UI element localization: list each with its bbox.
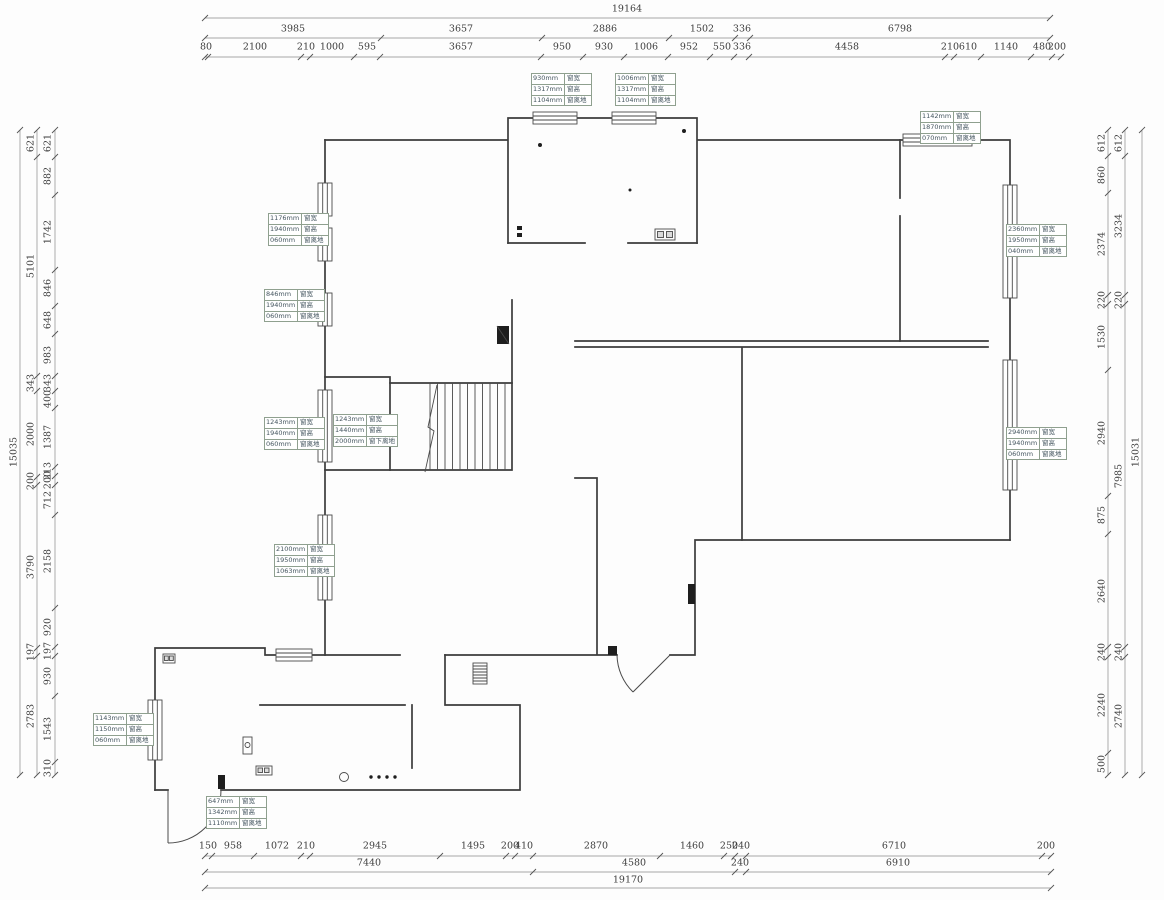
dim: 400 [43,390,54,408]
dim: 648 [43,311,54,329]
label-value: 1940mm [265,301,298,311]
label-value: 040mm [1007,247,1040,257]
wall-fitting [517,226,522,230]
dim: 1495 [461,841,485,852]
label-value: 2000mm [334,437,367,447]
label-value: 070mm [921,134,954,144]
dim: 1502 [690,24,714,35]
ceiling-dot [682,129,686,133]
label-key: 窗宽 [127,714,153,724]
dim: 1543 [43,717,54,741]
dim: 220 [1114,291,1125,309]
dim: 1460 [680,841,704,852]
label-key: 窗宽 [298,418,324,428]
label-value: 1950mm [275,556,308,566]
dim-total-left: 15035 [9,437,20,467]
label-key: 窗离地 [1040,450,1066,460]
label-value: 1950mm [1007,236,1040,246]
dim: 1006 [634,42,658,53]
dim: 6710 [882,841,906,852]
door-block [218,775,225,789]
label-value: 1243mm [265,418,298,428]
label-key: 窗宽 [954,112,980,122]
label-value: 1006mm [616,74,649,84]
dim: 1387 [43,425,54,449]
dim: 1072 [265,841,289,852]
dim: 1530 [1097,325,1108,349]
stove-dot [377,775,380,778]
dim: 6910 [886,858,910,869]
dim: 3790 [26,555,37,579]
dim: 2870 [584,841,608,852]
dim: 2100 [243,42,267,53]
label-value: 060mm [265,440,298,450]
label-value: 1440mm [334,426,367,436]
dim: 2940 [1097,421,1108,445]
label-value: 1342mm [207,808,240,818]
window-label: 1143mm窗宽 1150mm窗高 060mm窗离地 [93,713,154,746]
label-value: 1176mm [269,214,302,224]
dim: 310 [43,759,54,777]
label-key: 窗下离地 [367,437,397,447]
burner-circle [340,773,349,782]
dim: 2240 [1097,693,1108,717]
label-key: 窗高 [298,429,324,439]
dim: 950 [553,42,571,53]
door-block [608,646,617,655]
dim: 1742 [43,220,54,244]
window-label: 846mm窗宽 1940mm窗高 060mm窗离地 [264,289,325,322]
dim: 220 [1097,291,1108,309]
label-value: 1110mm [207,819,240,829]
label-key: 窗高 [565,85,591,95]
dim: 2945 [363,841,387,852]
dim: 80 [200,42,212,53]
label-value: 1940mm [1007,439,1040,449]
dim: 860 [1097,166,1108,184]
dim: 930 [595,42,613,53]
label-key: 窗离地 [565,96,591,106]
label-value: 1150mm [94,725,127,735]
dim: 210 [941,42,959,53]
symbols [163,129,695,789]
label-key: 窗宽 [1040,428,1066,438]
window-label: 1243mm窗宽 1440mm窗高 2000mm窗下离地 [333,414,398,447]
dim: 210 [297,841,315,852]
dim: 621 [26,134,37,152]
dim: 336 [733,42,751,53]
dim: 197 [43,642,54,660]
dim: 240 [1097,643,1108,661]
dim: 920 [43,618,54,636]
label-key: 窗离地 [302,236,328,246]
label-value: 060mm [1007,450,1040,460]
label-key: 窗高 [302,225,328,235]
label-key: 窗离地 [127,736,153,746]
dim: 240 [731,858,749,869]
dim: 2158 [43,549,54,573]
label-key: 窗高 [298,301,324,311]
label-key: 窗宽 [302,214,328,224]
dim: 610 [959,42,977,53]
label-value: 930mm [532,74,565,84]
dim: 197 [26,643,37,661]
dim: 150 [199,841,217,852]
label-key: 窗宽 [649,74,675,84]
dim-total-right: 15031 [1131,437,1142,467]
floor-plan-page: 19164 3985 3657 2886 1502 336 6798 80 21… [0,0,1164,900]
dim: 846 [43,279,54,297]
label-value: 1243mm [334,415,367,425]
label-key: 窗宽 [298,290,324,300]
label-value: 846mm [265,290,298,300]
dim: 5101 [26,254,37,278]
window-label: 930mm窗宽 1317mm窗高 1104mm窗离地 [531,73,592,106]
stove-dot [385,775,388,778]
label-key: 窗离地 [649,96,675,106]
label-key: 窗离地 [240,819,266,829]
dim: 595 [358,42,376,53]
label-key: 窗离地 [298,440,324,450]
label-value: 2100mm [275,545,308,555]
dim: 4458 [835,42,859,53]
window-label: 1006mm窗宽 1317mm窗高 1104mm窗离地 [615,73,676,106]
label-value: 060mm [94,736,127,746]
label-key: 窗高 [649,85,675,95]
dim: 612 [1114,134,1125,152]
dim: 612 [1097,134,1108,152]
dim: 2640 [1097,579,1108,603]
dimension-lines [20,18,1142,888]
sink-fixture [243,737,252,754]
dim: 875 [1097,506,1108,524]
dim: 240 [732,841,750,852]
label-value: 1063mm [275,567,308,577]
label-key: 窗离地 [308,567,334,577]
dim-total-bottom: 19170 [613,875,643,886]
dim: 3657 [449,42,473,53]
label-key: 窗高 [1040,439,1066,449]
dim: 882 [43,167,54,185]
label-value: 1870mm [921,123,954,133]
dim: 336 [733,24,751,35]
dim: 240 [1114,643,1125,661]
label-value: 1317mm [616,85,649,95]
label-value: 1940mm [269,225,302,235]
dim: 3234 [1114,214,1125,238]
ceiling-dot [629,189,632,192]
label-value: 647mm [207,797,240,807]
dim: 1000 [320,42,344,53]
label-key: 窗离地 [954,134,980,144]
dim: 410 [515,841,533,852]
stove-dot [393,775,396,778]
dimension-ticks [17,15,1145,891]
window-label: 1142mm窗宽 1870mm窗高 070mm窗离地 [920,111,981,144]
window-label: 1243mm窗宽 1940mm窗高 060mm窗离地 [264,417,325,450]
window-label: 2940mm窗宽 1940mm窗高 060mm窗离地 [1006,427,1067,460]
label-value: 2940mm [1007,428,1040,438]
label-key: 窗高 [308,556,334,566]
dim: 621 [43,134,54,152]
window-label: 647mm窗宽 1342mm窗高 1110mm窗离地 [206,796,267,829]
dim: 2783 [26,704,37,728]
label-value: 2360mm [1007,225,1040,235]
label-value: 1104mm [616,96,649,106]
dim: 2740 [1114,704,1125,728]
floor-plan-drawing [0,0,1164,900]
label-key: 窗高 [1040,236,1066,246]
label-key: 窗宽 [1040,225,1066,235]
dim: 952 [680,42,698,53]
window-label: 2360mm窗宽 1950mm窗高 040mm窗离地 [1006,224,1067,257]
dim: 7440 [357,858,381,869]
dim: 4580 [622,858,646,869]
dim: 958 [224,841,242,852]
label-value: 1142mm [921,112,954,122]
window-label: 2100mm窗宽 1950mm窗高 1063mm窗离地 [274,544,335,577]
dim: 200 [1048,42,1066,53]
dim: 500 [1097,755,1108,773]
dim: 200 [43,471,54,489]
label-key: 窗高 [240,808,266,818]
window-label: 1176mm窗宽 1940mm窗高 060mm窗离地 [268,213,329,246]
door-block [688,584,695,604]
label-key: 窗宽 [565,74,591,84]
dim: 2000 [26,422,37,446]
label-key: 窗高 [127,725,153,735]
label-key: 窗高 [954,123,980,133]
label-value: 1143mm [94,714,127,724]
staircase [425,383,505,472]
ceiling-dot [538,143,542,147]
label-key: 窗宽 [240,797,266,807]
dim: 2374 [1097,232,1108,256]
stove-dot [369,775,372,778]
wall-fitting [517,233,522,237]
dim: 210 [297,42,315,53]
dim: 1140 [994,42,1018,53]
label-key: 窗离地 [298,312,324,322]
label-key: 窗宽 [367,415,393,425]
dim: 3657 [449,24,473,35]
label-key: 窗离地 [1040,247,1066,257]
dim: 983 [43,346,54,364]
label-value: 1104mm [532,96,565,106]
dim-total-top: 19164 [612,4,642,15]
dim: 3985 [281,24,305,35]
dim: 712 [43,491,54,509]
dim: 343 [26,374,37,392]
dim: 550 [713,42,731,53]
dim: 2886 [593,24,617,35]
dim: 930 [43,667,54,685]
label-value: 1317mm [532,85,565,95]
label-value: 1940mm [265,429,298,439]
dim: 6798 [888,24,912,35]
dim: 7985 [1114,464,1125,488]
label-key: 窗宽 [308,545,334,555]
dim: 200 [1037,841,1055,852]
label-key: 窗高 [367,426,393,436]
label-value: 060mm [265,312,298,322]
dim: 200 [26,472,37,490]
label-value: 060mm [269,236,302,246]
